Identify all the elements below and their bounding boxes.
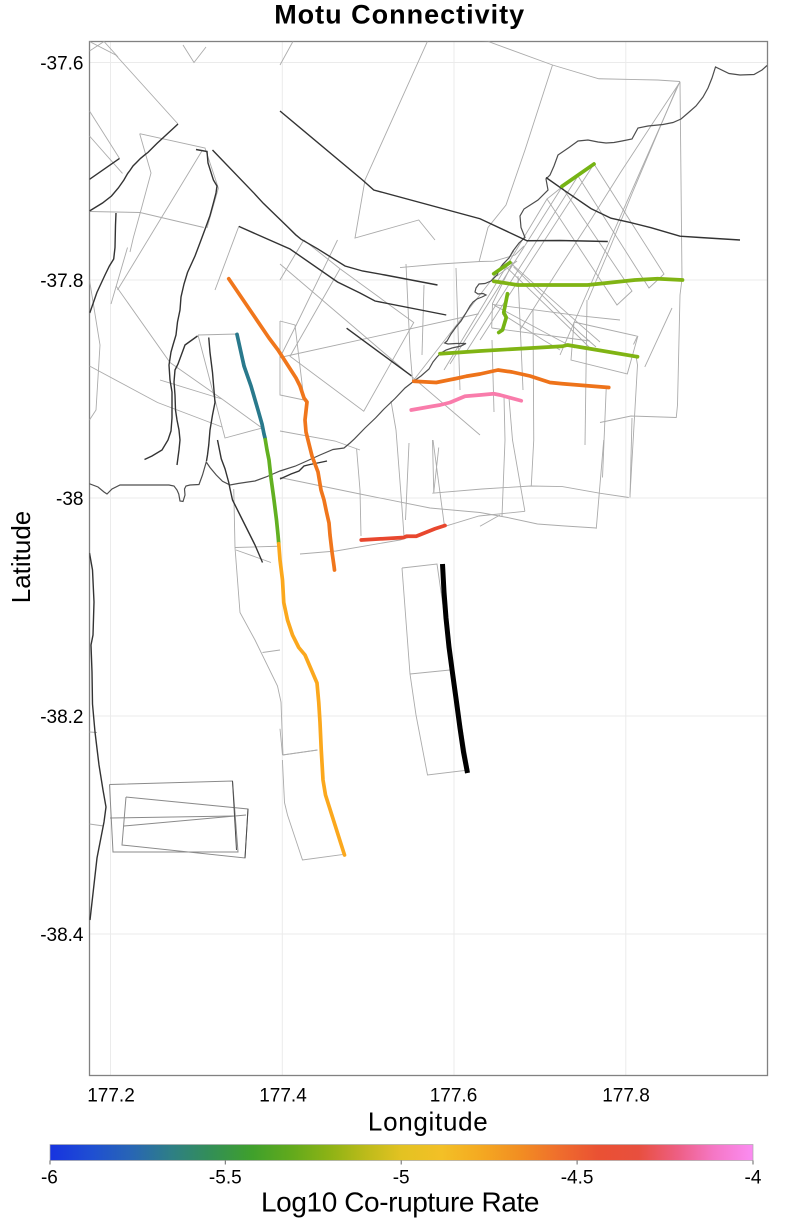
svg-text:177.2: 177.2 — [87, 1086, 135, 1107]
svg-text:Log10 Co-rupture Rate: Log10 Co-rupture Rate — [261, 1186, 539, 1217]
svg-text:-4: -4 — [745, 1167, 762, 1188]
svg-text:-38.2: -38.2 — [40, 707, 83, 728]
svg-text:-37.8: -37.8 — [40, 271, 83, 292]
svg-text:-38.4: -38.4 — [40, 925, 84, 946]
svg-text:-4.5: -4.5 — [561, 1167, 594, 1188]
svg-text:Longitude: Longitude — [368, 1106, 489, 1136]
svg-text:-37.6: -37.6 — [40, 53, 83, 74]
svg-text:Motu Connectivity: Motu Connectivity — [274, 0, 525, 29]
svg-text:-5: -5 — [393, 1167, 410, 1188]
svg-text:177.8: 177.8 — [602, 1086, 650, 1107]
svg-text:177.6: 177.6 — [430, 1086, 478, 1107]
svg-text:-6: -6 — [41, 1167, 58, 1188]
svg-text:-38: -38 — [56, 489, 83, 510]
svg-text:-5.5: -5.5 — [209, 1167, 242, 1188]
svg-text:177.4: 177.4 — [259, 1086, 307, 1107]
svg-text:Latitude: Latitude — [6, 511, 36, 604]
